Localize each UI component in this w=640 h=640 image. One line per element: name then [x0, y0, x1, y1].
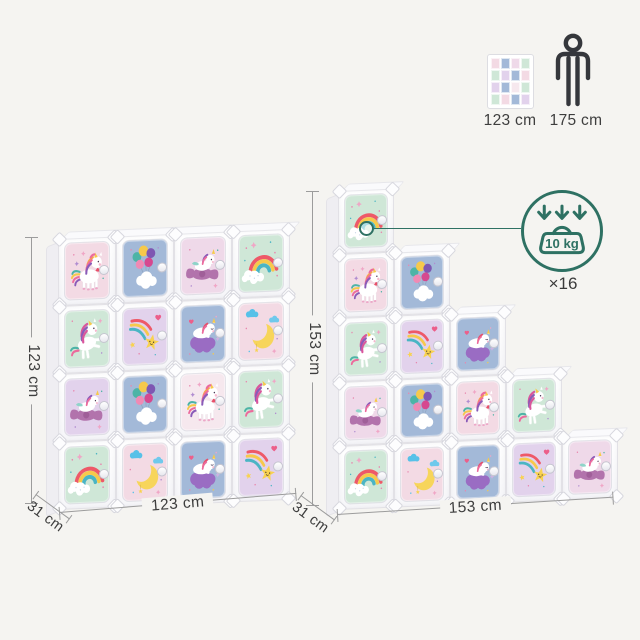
storage-cube — [394, 377, 450, 443]
mini-cube — [511, 94, 520, 105]
cube-door-unicorn-standing — [65, 242, 109, 300]
cabinet-4x4 — [58, 228, 290, 510]
mini-cube — [501, 58, 510, 69]
callout-ring — [359, 221, 374, 236]
mini-cube — [511, 70, 520, 81]
mini-cube — [491, 82, 500, 93]
product-dimension-infographic: 123 cm 175 cm 10 kg ×16 — [0, 0, 640, 640]
mini-cube — [501, 82, 510, 93]
storage-cube — [394, 441, 450, 507]
mini-cabinet-icon — [487, 54, 534, 109]
stair-column-3 — [450, 311, 506, 505]
cube-door-balloons — [123, 375, 167, 433]
mini-cube — [491, 94, 500, 105]
mini-cube — [521, 70, 530, 81]
cube-door-rainbow — [65, 446, 109, 504]
cube-door-moon — [123, 443, 167, 501]
cube-door-balloons — [401, 255, 443, 309]
storage-cube — [450, 311, 506, 377]
storage-cube — [506, 436, 562, 502]
cube-door-balloons — [123, 239, 167, 297]
storage-cube — [116, 233, 174, 304]
cube-door-unicorn-prancing — [65, 310, 109, 368]
storage-cube — [58, 235, 116, 306]
cube-door-unicorn-sleeping — [457, 317, 499, 371]
cube-door-unicorn-cloud — [569, 440, 611, 494]
storage-cube — [232, 432, 290, 503]
mini-cabinet-grid — [491, 58, 530, 105]
cube-door-shooting-star — [513, 443, 555, 497]
callout-line — [374, 228, 521, 229]
cube-door-unicorn-prancing — [345, 322, 387, 376]
storage-cube — [338, 380, 394, 446]
cube-door-unicorn-standing — [345, 258, 387, 312]
person-icon — [550, 33, 596, 114]
mini-cube — [491, 58, 500, 69]
storage-cube — [394, 249, 450, 315]
mini-cube — [491, 70, 500, 81]
cube-door-unicorn-prancing — [513, 379, 555, 433]
height-dimension-right-unit: 153 cm — [312, 191, 313, 506]
cube-door-unicorn-sleeping — [181, 305, 225, 363]
cube-door-shooting-star — [401, 319, 443, 373]
cube-door-unicorn-standing — [181, 373, 225, 431]
stair-column-5 — [562, 434, 618, 500]
cube-door-unicorn-sleeping — [457, 445, 499, 499]
height-dimension-left-unit: 123 cm — [31, 237, 32, 504]
stair-column-4 — [506, 372, 562, 502]
storage-cube — [174, 366, 232, 437]
mini-cube — [521, 58, 530, 69]
cabinet-4x4-grid — [58, 228, 290, 510]
storage-cube — [58, 303, 116, 374]
cube-door-unicorn-cloud — [65, 378, 109, 436]
height-label: 123 cm — [22, 337, 44, 404]
cube-door-unicorn-cloud — [345, 386, 387, 440]
storage-cube — [232, 228, 290, 299]
mini-cube — [501, 94, 510, 105]
storage-cube — [338, 444, 394, 510]
storage-cube — [450, 439, 506, 505]
storage-cube — [338, 252, 394, 318]
storage-cube — [562, 434, 618, 500]
storage-cube — [394, 313, 450, 379]
width-label: 153 cm — [439, 496, 511, 518]
storage-cube — [116, 301, 174, 372]
person-height-label: 175 cm — [536, 112, 616, 130]
cube-door-unicorn-prancing — [239, 370, 283, 428]
height-label: 153 cm — [303, 315, 325, 382]
cube-door-balloons — [401, 383, 443, 437]
storage-cube — [174, 230, 232, 301]
storage-cube — [450, 375, 506, 441]
mini-cube — [521, 94, 530, 105]
cube-door-unicorn-sleeping — [181, 441, 225, 499]
mini-cube — [521, 82, 530, 93]
storage-cube — [232, 296, 290, 367]
mini-cube — [511, 82, 520, 93]
cube-door-shooting-star — [123, 307, 167, 365]
storage-cube — [174, 298, 232, 369]
cube-door-moon — [239, 302, 283, 360]
cube-door-moon — [401, 447, 443, 501]
cube-door-rainbow — [345, 450, 387, 504]
storage-cube — [58, 439, 116, 510]
storage-cube — [338, 316, 394, 382]
cube-door-rainbow — [239, 234, 283, 292]
mini-cube — [511, 58, 520, 69]
stair-column-2 — [394, 249, 450, 507]
cube-door-unicorn-standing — [457, 381, 499, 435]
storage-cube — [116, 369, 174, 440]
mini-cube — [501, 70, 510, 81]
cube-door-shooting-star — [239, 438, 283, 496]
storage-cube — [506, 372, 562, 438]
cube-door-unicorn-cloud — [181, 237, 225, 295]
storage-cube — [232, 364, 290, 435]
storage-cube — [58, 371, 116, 442]
